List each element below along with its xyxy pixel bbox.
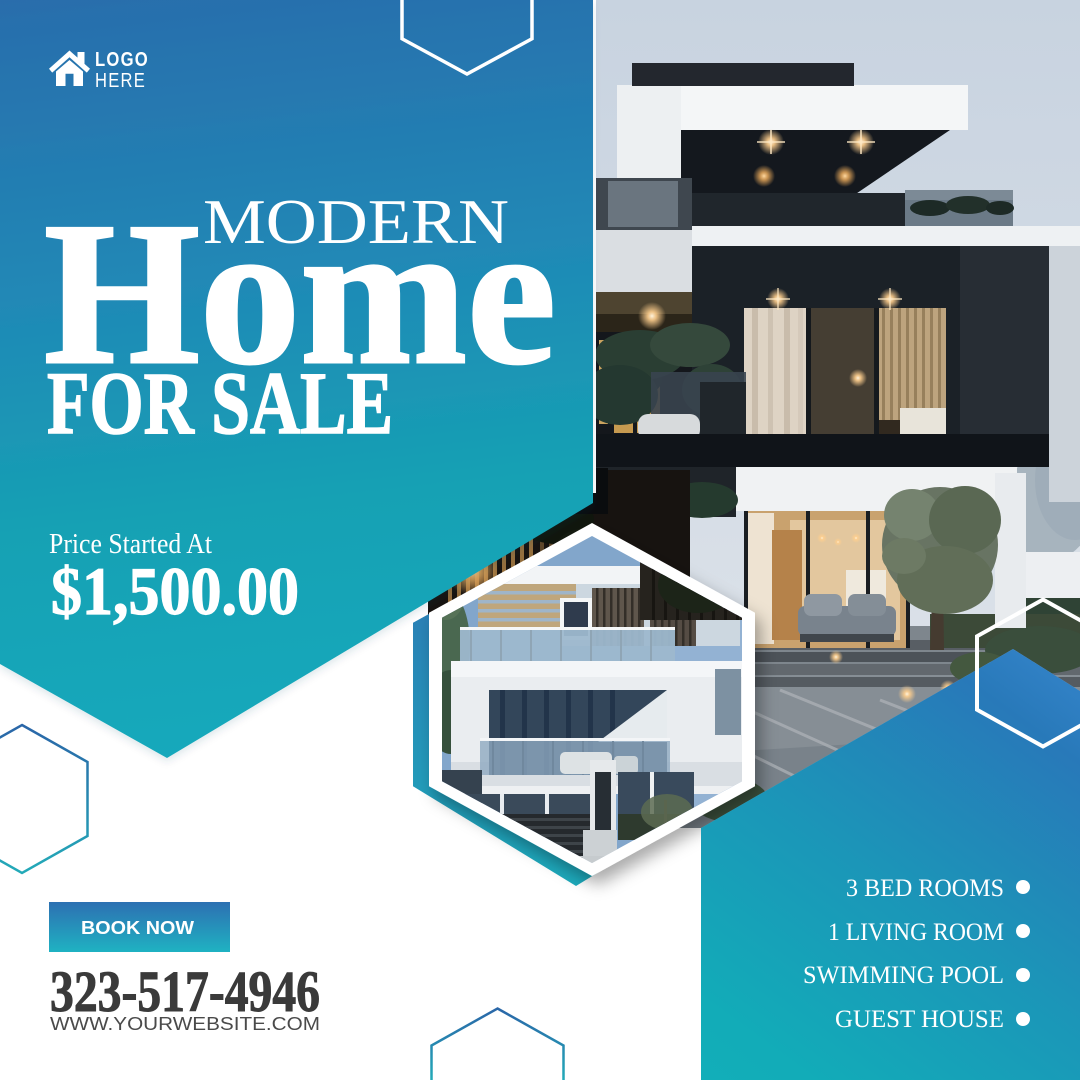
svg-text:HERE: HERE — [95, 70, 146, 92]
svg-text:1 LIVING ROOM: 1 LIVING ROOM — [828, 919, 1004, 946]
svg-text:LOGO: LOGO — [95, 49, 149, 71]
svg-text:BOOK NOW: BOOK NOW — [81, 918, 194, 938]
svg-text:FOR SALE: FOR SALE — [47, 355, 393, 453]
svg-text:3 BED ROOMS: 3 BED ROOMS — [846, 875, 1004, 902]
svg-text:WWW.YOURWEBSITE.COM: WWW.YOURWEBSITE.COM — [50, 1014, 320, 1034]
svg-text:GUEST HOUSE: GUEST HOUSE — [835, 1006, 1004, 1033]
svg-text:$1,500.00: $1,500.00 — [51, 553, 299, 629]
svg-text:SWIMMING POOL: SWIMMING POOL — [803, 962, 1004, 989]
